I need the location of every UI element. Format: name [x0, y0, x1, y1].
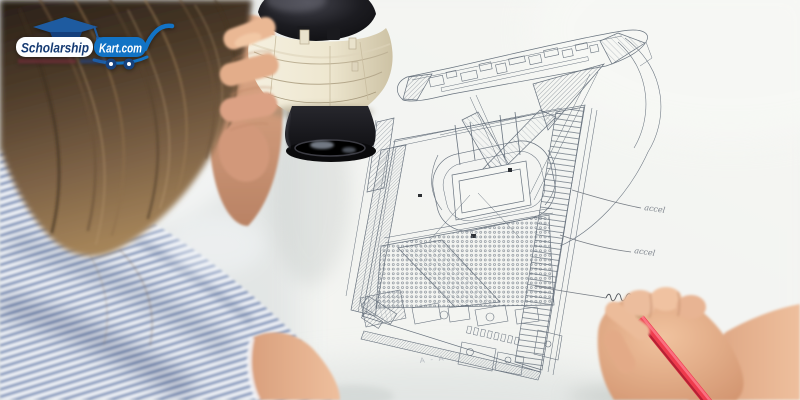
- brand-logo-art: Scholarship Kart.com: [10, 8, 192, 72]
- brand-name-secondary: Kart.com: [99, 41, 142, 56]
- lens-barrel: [285, 106, 376, 162]
- logo-tagline: [18, 59, 106, 64]
- photo-scene: accel accel A - A: [0, 0, 800, 400]
- brand-logo: Scholarship Kart.com: [10, 8, 192, 72]
- brand-name-primary: Scholarship: [21, 40, 89, 56]
